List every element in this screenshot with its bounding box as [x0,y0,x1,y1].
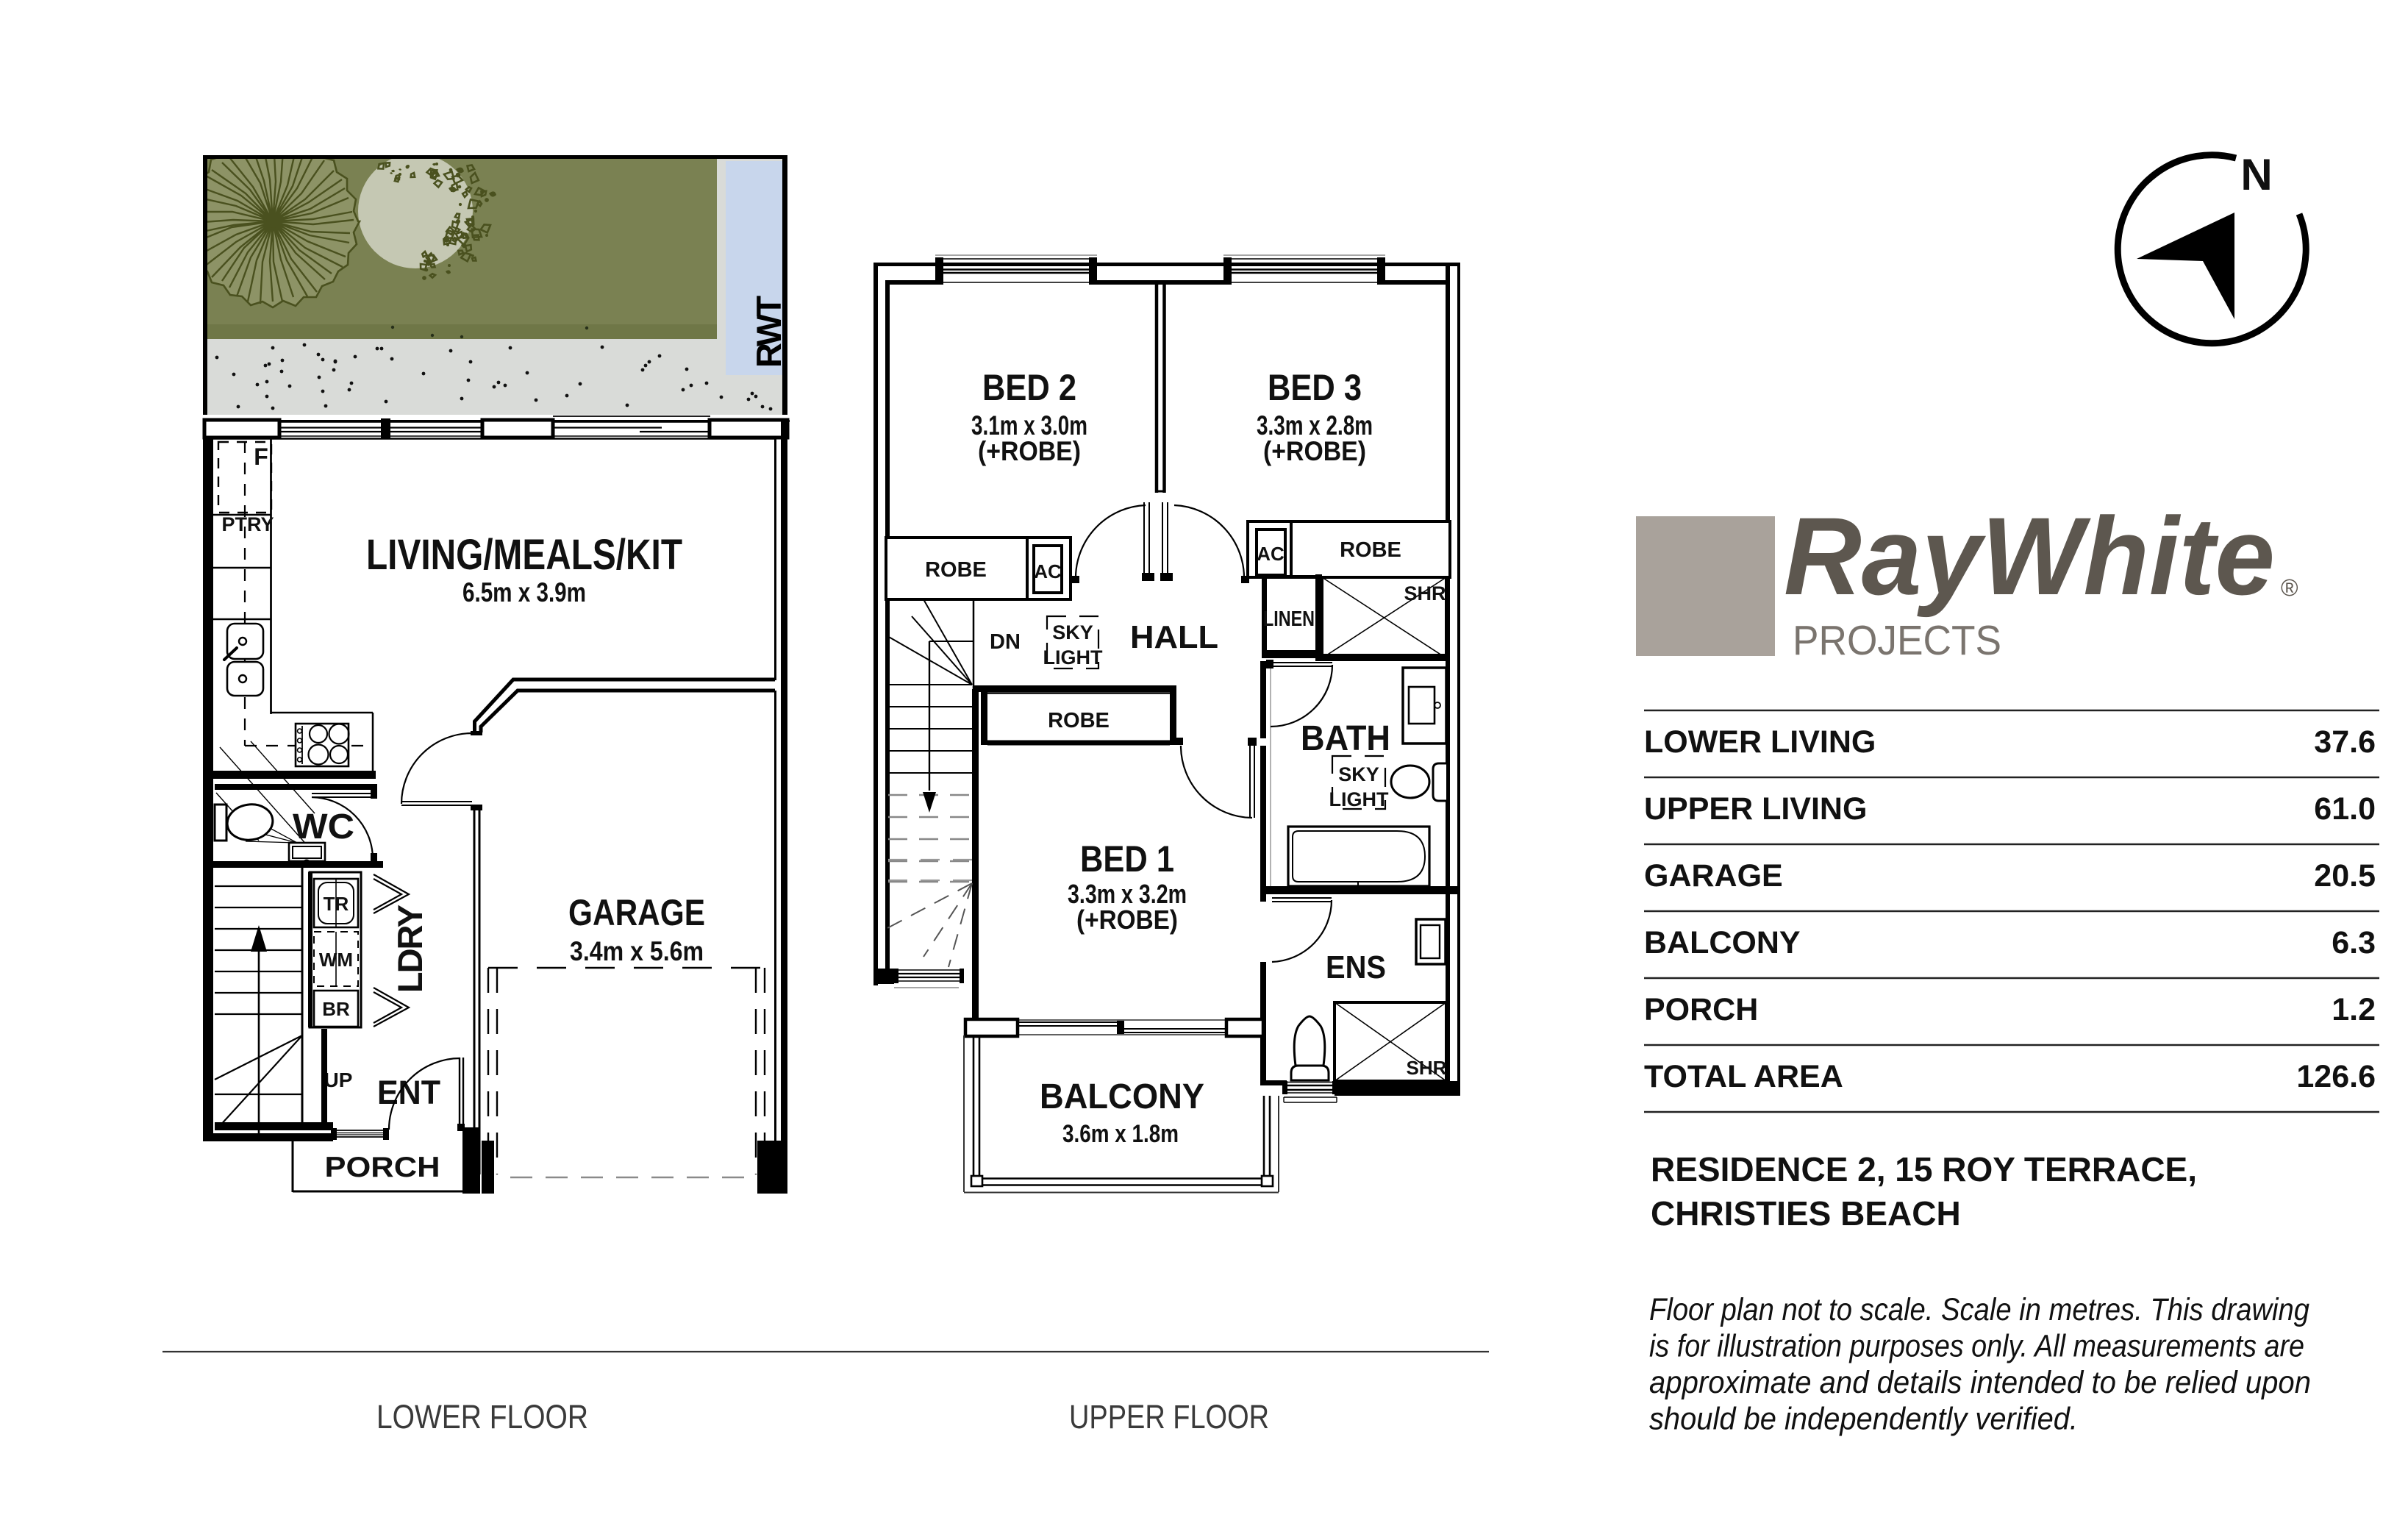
svg-text:37.6: 37.6 [2314,724,2376,760]
svg-text:PORCH: PORCH [1644,992,1758,1027]
svg-text:LDRY: LDRY [390,905,429,993]
svg-text:LOWER FLOOR: LOWER FLOOR [376,1398,588,1436]
svg-text:UPPER FLOOR: UPPER FLOOR [1069,1398,1269,1436]
svg-text:CHRISTIES BEACH: CHRISTIES BEACH [1651,1194,1961,1233]
svg-text:ROBE: ROBE [1048,709,1110,732]
svg-text:LIVING/MEALS/KIT: LIVING/MEALS/KIT [366,531,682,579]
svg-text:PROJECTS: PROJECTS [1793,617,2001,664]
svg-text:61.0: 61.0 [2314,791,2376,827]
svg-text:UPPER LIVING: UPPER LIVING [1644,791,1867,827]
svg-text:BED 2: BED 2 [982,367,1076,408]
svg-text:HALL: HALL [1130,619,1218,655]
svg-text:GARAGE: GARAGE [568,892,705,933]
svg-text:(+ROBE): (+ROBE) [1076,905,1178,935]
svg-text:Floor plan not to scale. Scale: Floor plan not to scale. Scale in metres… [1649,1292,2309,1327]
svg-text:WC: WC [293,807,354,846]
svg-text:F: F [254,443,268,470]
svg-text:TR: TR [324,893,349,915]
svg-text:SHR: SHR [1404,582,1446,605]
svg-text:3.6m x 1.8m: 3.6m x 1.8m [1062,1120,1179,1148]
svg-text:N: N [2240,150,2272,199]
svg-text:ROBE: ROBE [925,558,987,582]
svg-text:LOWER LIVING: LOWER LIVING [1644,724,1876,760]
svg-text:(+ROBE): (+ROBE) [1263,436,1366,466]
svg-text:6.5m x 3.9m: 6.5m x 3.9m [462,577,586,607]
svg-text:BED 1: BED 1 [1080,838,1174,880]
svg-text:RayWhite: RayWhite [1784,494,2275,618]
svg-text:LINEN: LINEN [1263,607,1315,631]
svg-text:BALCONY: BALCONY [1040,1077,1204,1116]
svg-text:is for illustration purposes o: is for illustration purposes only. All m… [1649,1329,2304,1364]
svg-text:PTRY: PTRY [221,513,274,535]
svg-text:BATH: BATH [1301,719,1390,758]
svg-text:SKY: SKY [1052,621,1093,643]
svg-text:LIGHT: LIGHT [1043,646,1103,668]
svg-text:DN: DN [990,630,1021,654]
svg-text:PORCH: PORCH [325,1152,440,1183]
svg-text:LIGHT: LIGHT [1329,788,1389,810]
svg-text:SHR: SHR [1407,1057,1447,1079]
svg-text:ENS: ENS [1326,949,1386,985]
svg-text:3.4m x 5.6m: 3.4m x 5.6m [570,936,704,966]
svg-text:BALCONY: BALCONY [1644,925,1801,960]
svg-text:TOTAL AREA: TOTAL AREA [1644,1059,1843,1094]
svg-text:GARAGE: GARAGE [1644,858,1783,894]
svg-text:AC: AC [1257,543,1285,565]
svg-text:20.5: 20.5 [2314,858,2376,894]
svg-text:BR: BR [322,998,350,1020]
svg-text:BED 3: BED 3 [1268,367,1362,408]
svg-text:1.2: 1.2 [2332,992,2376,1027]
svg-text:®: ® [2281,574,2298,601]
svg-text:should be independently verifi: should be independently verified. [1649,1402,2078,1437]
svg-text:UP: UP [324,1069,353,1091]
svg-text:WM: WM [319,949,353,971]
svg-text:RESIDENCE 2, 15 ROY TERRACE,: RESIDENCE 2, 15 ROY TERRACE, [1651,1150,2197,1188]
svg-text:126.6: 126.6 [2296,1059,2376,1094]
svg-text:6.3: 6.3 [2332,925,2376,960]
svg-text:approximate and details intend: approximate and details intended to be r… [1649,1365,2311,1400]
svg-text:SKY: SKY [1338,763,1379,785]
svg-text:ROBE: ROBE [1340,538,1401,562]
svg-text:AC: AC [1034,560,1062,582]
svg-text:(+ROBE): (+ROBE) [978,436,1081,466]
